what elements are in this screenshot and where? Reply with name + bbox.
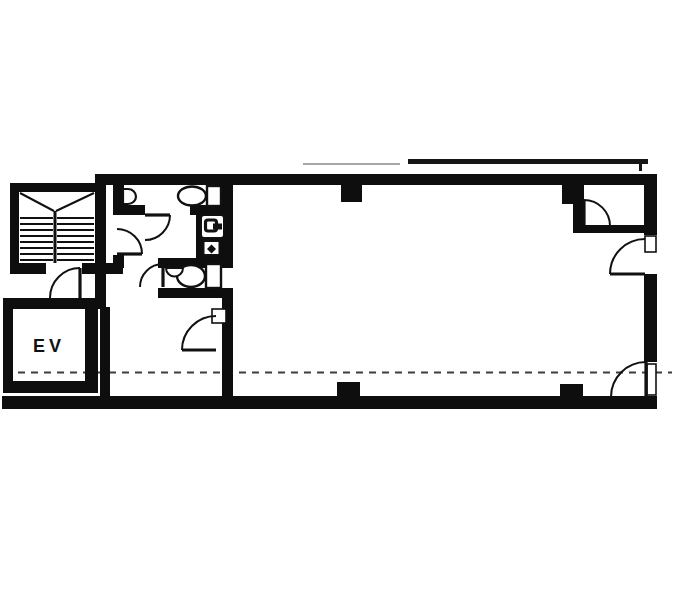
scanned-floor-plan-page: EV: [0, 0, 681, 597]
entry-upper-door-jamb: [645, 236, 656, 252]
ev-left-wall: [3, 298, 13, 393]
cistern-bump-icon: [166, 268, 183, 277]
hall: [110, 298, 222, 396]
closet: [583, 185, 644, 225]
column-top-1: [341, 185, 362, 202]
bottom-wall: [2, 396, 657, 409]
ev-right-wall: [85, 298, 98, 393]
closet-door-swing-arc: [584, 200, 610, 226]
upper-toilet-tank: [207, 186, 221, 206]
upper-toilet-door-swing-arc: [145, 215, 170, 240]
entry-door-upper-swing-arc: [610, 239, 645, 274]
stair-diagonal-2: [56, 193, 94, 211]
ev-bottom-wall: [3, 381, 98, 393]
lower-toilet-bottom-wall: [158, 288, 233, 298]
column-top-2: [562, 185, 584, 204]
stair-diagonal-1: [20, 193, 54, 211]
upper-toilet-bowl: [178, 187, 206, 206]
entry-lower-door-jamb: [647, 364, 656, 395]
urinal-icon: [123, 189, 136, 204]
right-wall-middle: [644, 274, 657, 362]
partition-wall: [222, 288, 233, 402]
column-bottom-2: [560, 384, 583, 398]
lower-toilet-tank: [206, 264, 221, 288]
lobby-door-swing-arc: [117, 229, 142, 254]
stair-door-swing-arc: [50, 268, 80, 298]
toilet-mid-wall-left: [113, 205, 145, 215]
stair-right-wall: [95, 185, 106, 309]
column-bottom-1: [337, 382, 360, 398]
stairwell: [19, 192, 95, 263]
main-left-wall: [100, 307, 110, 397]
stair-bottom-wall-left: [10, 263, 46, 274]
top-wall: [95, 174, 657, 185]
entry-door-lower-swing-arc: [611, 362, 646, 397]
closet-bottom-wall: [573, 225, 657, 233]
toilet-left-stub: [113, 255, 124, 268]
ev-top-wall: [3, 298, 98, 309]
faucet-spout-icon: [213, 224, 222, 230]
floor-plan-drawing: EV: [0, 0, 681, 597]
eave-line-right: [408, 159, 648, 164]
right-wall-corner: [644, 397, 657, 409]
stair-left-wall: [10, 183, 19, 272]
hall-door-swing-arc: [182, 316, 216, 350]
eave-line-tick: [639, 159, 642, 171]
elevator-label: EV: [33, 336, 65, 356]
eave-line-left: [303, 163, 400, 165]
stair-top-wall: [10, 183, 103, 192]
